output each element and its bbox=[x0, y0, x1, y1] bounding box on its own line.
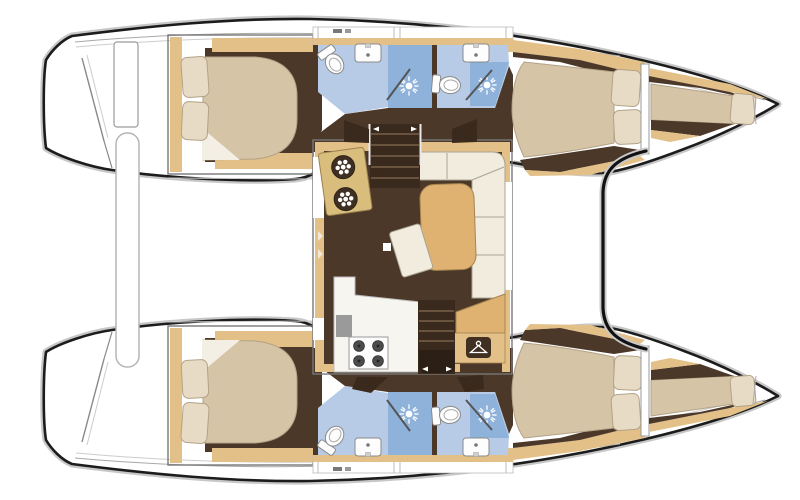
galley-sink-unit bbox=[318, 147, 372, 216]
forward-crossbeam bbox=[603, 151, 646, 349]
salon-window bbox=[313, 318, 324, 340]
burner-icon bbox=[373, 356, 384, 367]
table-leg bbox=[383, 243, 391, 251]
wardrobe-locker bbox=[454, 333, 505, 363]
burner-icon bbox=[354, 341, 365, 352]
burner-icon bbox=[373, 341, 384, 352]
helm-seat bbox=[114, 42, 138, 127]
top-companionway-stairs bbox=[370, 124, 421, 188]
bottom-companionway-stairs bbox=[418, 300, 455, 374]
catamaran-floor-plan bbox=[0, 0, 800, 500]
stern-crossbar bbox=[116, 133, 139, 367]
floor-plan-canvas bbox=[0, 0, 800, 500]
galley-sink bbox=[336, 315, 352, 337]
burner-icon bbox=[354, 356, 365, 367]
